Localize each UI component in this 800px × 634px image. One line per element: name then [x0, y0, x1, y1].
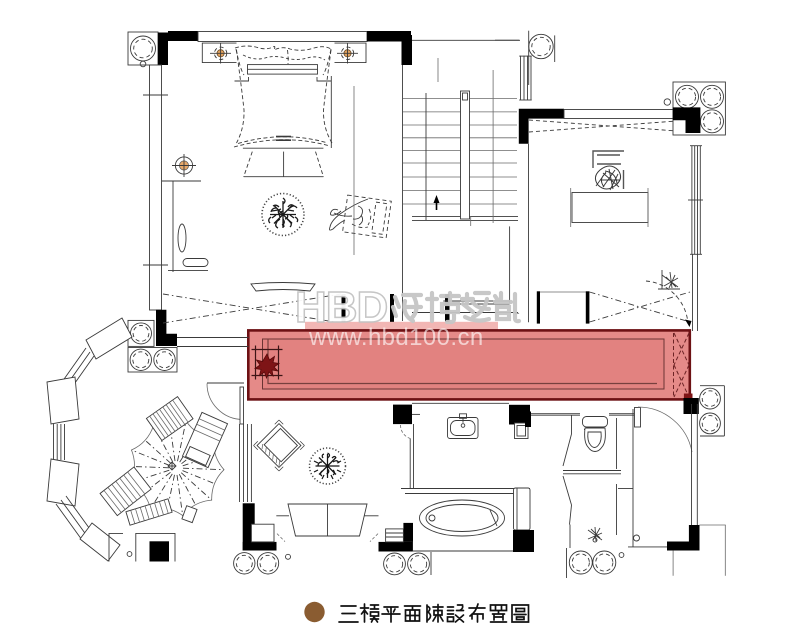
svg-text:www.hbd100.cn: www.hbd100.cn	[308, 324, 484, 351]
